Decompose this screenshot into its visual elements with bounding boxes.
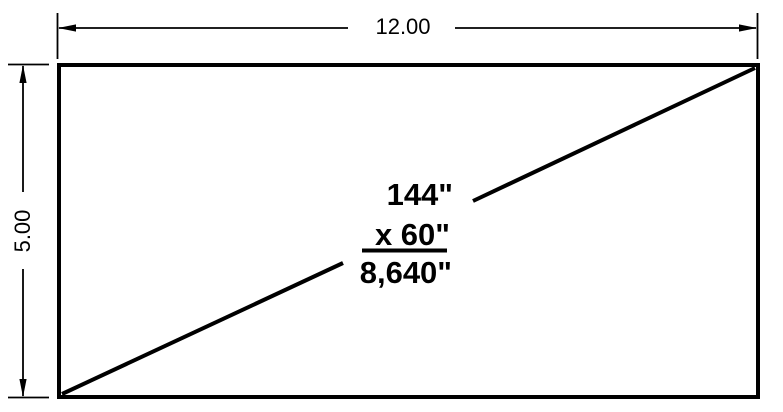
- left-dimension: 5.00: [8, 65, 49, 398]
- diagonal-line-lower-segment: [62, 263, 343, 394]
- area-calculation: 144" x 60" 8,640": [360, 177, 453, 290]
- drawing-canvas: 12.00 5.00 144" x 60" 8,640": [0, 0, 783, 412]
- dimension-diagram: 12.00 5.00 144" x 60" 8,640": [0, 0, 783, 412]
- diagonal-line-upper-segment: [473, 68, 755, 201]
- arrowhead-left-icon: [58, 24, 76, 31]
- top-dimension: 12.00: [58, 13, 758, 59]
- calc-result-label: 8,640": [360, 255, 452, 290]
- width-dimension-label: 12.00: [375, 14, 430, 39]
- arrowhead-down-icon: [19, 379, 26, 397]
- calc-multiplicand-label: 144": [387, 177, 453, 212]
- calc-multiplier-label: x 60": [375, 217, 450, 252]
- height-dimension-label: 5.00: [10, 210, 35, 253]
- arrowhead-right-icon: [739, 24, 757, 31]
- arrowhead-up-icon: [19, 65, 26, 83]
